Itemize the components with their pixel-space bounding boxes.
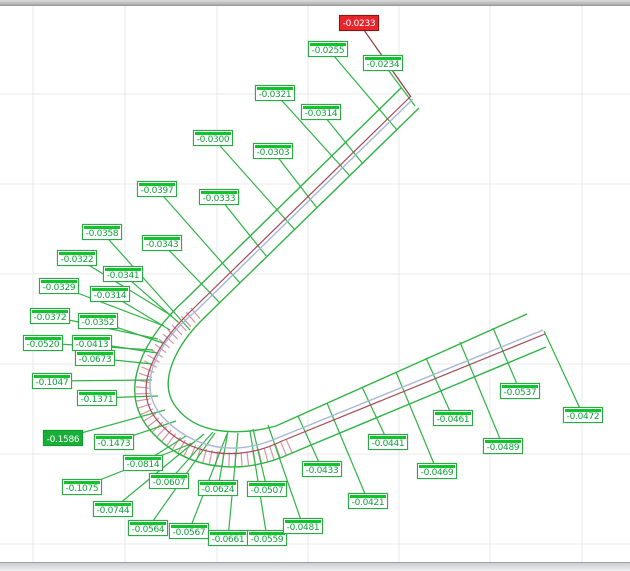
deviation-value: -0.0233 bbox=[340, 19, 378, 30]
deviation-value: -0.0814 bbox=[124, 460, 162, 471]
measurement-label[interactable]: -0.0322 bbox=[57, 250, 97, 266]
deviation-value: -0.1371 bbox=[78, 395, 116, 406]
deviation-value: -0.0661 bbox=[209, 535, 247, 546]
deviation-value: -0.0421 bbox=[349, 498, 387, 509]
deviation-value: -0.0303 bbox=[254, 148, 292, 159]
deviation-value: -0.0537 bbox=[501, 388, 539, 399]
deviation-value: -0.1586 bbox=[44, 435, 82, 446]
deviation-value: -0.0333 bbox=[200, 194, 238, 205]
deviation-value: -0.0234 bbox=[364, 60, 402, 71]
measurement-label[interactable]: -0.0814 bbox=[123, 455, 163, 471]
measurement-label[interactable]: -0.0661 bbox=[208, 530, 248, 546]
measurement-label[interactable]: -0.0461 bbox=[433, 410, 473, 426]
measured-profile bbox=[146, 96, 545, 454]
deviation-value: -0.0352 bbox=[79, 318, 117, 329]
measurement-label[interactable]: -0.0358 bbox=[82, 224, 122, 240]
measurement-label[interactable]: -0.0441 bbox=[368, 434, 408, 450]
measurement-label[interactable]: -0.0352 bbox=[78, 313, 118, 329]
measurement-label[interactable]: -0.0607 bbox=[149, 473, 189, 489]
measurement-label[interactable]: -0.0481 bbox=[283, 518, 323, 534]
horizontal-scrollbar[interactable] bbox=[0, 562, 630, 571]
measurement-label[interactable]: -0.0329 bbox=[39, 278, 79, 294]
measurement-label[interactable]: -0.0234 bbox=[363, 55, 403, 71]
leader-line bbox=[253, 429, 267, 489]
measurement-label[interactable]: -0.0673 bbox=[75, 350, 115, 366]
measurement-label[interactable]: -0.0624 bbox=[198, 480, 238, 496]
measurement-label[interactable]: -0.1586 bbox=[43, 430, 83, 446]
measurement-label[interactable]: -0.0507 bbox=[247, 481, 287, 497]
window-top-edge bbox=[0, 0, 630, 6]
measurement-label[interactable]: -0.0333 bbox=[199, 189, 239, 205]
measurement-label[interactable]: -0.0559 bbox=[247, 530, 287, 546]
measurement-label[interactable]: -0.0314 bbox=[90, 286, 130, 302]
measurement-label[interactable]: -0.1473 bbox=[94, 434, 134, 450]
deviation-value: -0.0358 bbox=[83, 229, 121, 240]
deviation-value: -0.0567 bbox=[170, 528, 208, 539]
deviation-whisker-fan bbox=[143, 313, 290, 459]
measurement-label[interactable]: -0.0343 bbox=[142, 235, 182, 251]
measurement-label[interactable]: -0.1075 bbox=[62, 479, 102, 495]
measurement-label[interactable]: -0.0233 bbox=[339, 15, 379, 31]
deviation-value: -0.0372 bbox=[31, 313, 69, 324]
deviation-value: -0.0489 bbox=[484, 443, 522, 454]
tolerance-band-inner bbox=[168, 108, 527, 432]
deviation-value: -0.0343 bbox=[143, 240, 181, 251]
deviation-value: -0.0607 bbox=[150, 478, 188, 489]
measurement-label[interactable]: -0.0744 bbox=[93, 501, 133, 517]
deviation-value: -0.0255 bbox=[309, 46, 347, 57]
deviation-value: -0.0673 bbox=[76, 355, 114, 366]
deviation-value: -0.0744 bbox=[94, 506, 132, 517]
measurement-label[interactable]: -0.0472 bbox=[563, 407, 603, 423]
deviation-value: -0.0433 bbox=[303, 466, 341, 477]
deviation-value: -0.1047 bbox=[33, 378, 71, 389]
deviation-value: -0.0397 bbox=[138, 186, 176, 197]
measurement-label[interactable]: -0.0564 bbox=[128, 520, 168, 536]
deviation-value: -0.0507 bbox=[248, 486, 286, 497]
deviation-value: -0.0559 bbox=[248, 535, 286, 546]
deviation-value: -0.0300 bbox=[194, 135, 232, 146]
measurement-label[interactable]: -0.0469 bbox=[417, 463, 457, 479]
deviation-value: -0.0322 bbox=[58, 255, 96, 266]
measurement-label[interactable]: -0.0489 bbox=[483, 438, 523, 454]
deviation-value: -0.0564 bbox=[129, 525, 167, 536]
leader-line bbox=[544, 331, 583, 415]
measurement-label[interactable]: -0.0567 bbox=[169, 523, 209, 539]
measurement-label[interactable]: -0.0303 bbox=[253, 143, 293, 159]
measurement-label[interactable]: -0.0314 bbox=[301, 104, 341, 120]
leader-line bbox=[327, 403, 368, 501]
measurement-label[interactable]: -0.0537 bbox=[500, 383, 540, 399]
deviation-value: -0.0321 bbox=[256, 90, 294, 101]
deviation-value: -0.0469 bbox=[418, 468, 456, 479]
deviation-value: -0.0329 bbox=[40, 283, 78, 294]
measurement-label[interactable]: -0.0397 bbox=[137, 181, 177, 197]
measurement-label[interactable]: -0.0255 bbox=[308, 41, 348, 57]
measurement-label[interactable]: -0.0300 bbox=[193, 130, 233, 146]
measurement-label[interactable]: -0.0433 bbox=[302, 461, 342, 477]
measurement-label[interactable]: -0.0321 bbox=[255, 85, 295, 101]
deviation-value: -0.0314 bbox=[302, 109, 340, 120]
deviation-value: -0.0341 bbox=[104, 271, 142, 282]
measurement-label[interactable]: -0.0421 bbox=[348, 493, 388, 509]
deviation-value: -0.0472 bbox=[564, 412, 602, 423]
deviation-value: -0.0481 bbox=[284, 523, 322, 534]
leader-line bbox=[460, 342, 503, 446]
measurement-label[interactable]: -0.0372 bbox=[30, 308, 70, 324]
measurement-label[interactable]: -0.0413 bbox=[72, 335, 112, 351]
inspection-viewport: -0.0233-0.0255-0.0234-0.0321-0.0314-0.03… bbox=[0, 0, 630, 571]
measurement-label[interactable]: -0.0341 bbox=[103, 266, 143, 282]
measurement-label[interactable]: -0.1371 bbox=[77, 390, 117, 406]
deviation-value: -0.0461 bbox=[434, 415, 472, 426]
deviation-value: -0.0520 bbox=[24, 340, 62, 351]
deviation-value: -0.0441 bbox=[369, 439, 407, 450]
deviation-value: -0.0624 bbox=[199, 485, 237, 496]
measurement-label[interactable]: -0.1047 bbox=[32, 373, 72, 389]
deviation-value: -0.0314 bbox=[91, 291, 129, 302]
deviation-value: -0.1075 bbox=[63, 484, 101, 495]
measurement-label[interactable]: -0.0520 bbox=[23, 335, 63, 351]
deviation-value: -0.1473 bbox=[95, 439, 133, 450]
